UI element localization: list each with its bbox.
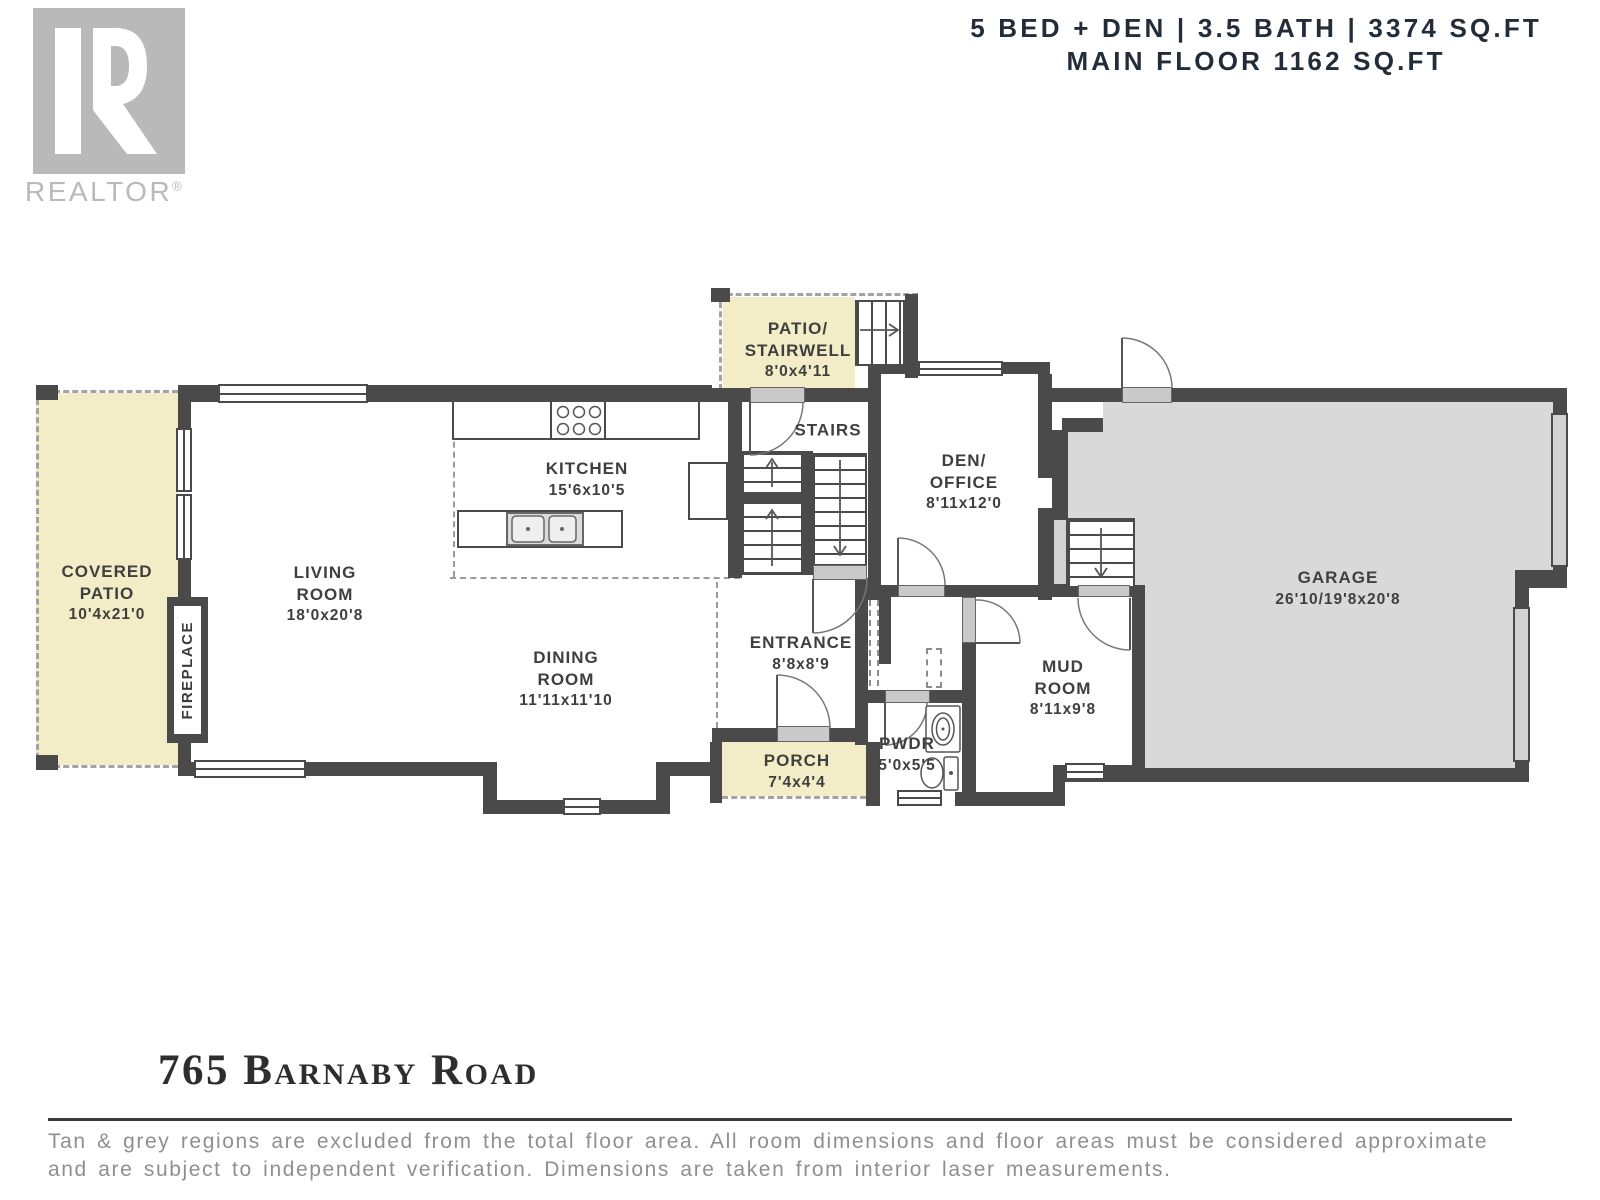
- stair-treads: [742, 451, 803, 494]
- door-bar: [813, 565, 867, 580]
- wall: [178, 558, 191, 602]
- door-bar: [885, 690, 930, 703]
- wall: [36, 385, 58, 400]
- room-label-stairs: STAIRS: [794, 419, 861, 441]
- patio-dashed-edge: [36, 390, 39, 768]
- kitchen-boundary-dashed: [450, 577, 740, 579]
- door-bar: [750, 387, 805, 403]
- window: [1052, 518, 1068, 586]
- island-sink-unit: [506, 512, 584, 546]
- wall: [728, 402, 742, 578]
- stair-treads: [742, 500, 803, 575]
- property-address: 765 Barnaby Road: [158, 1046, 539, 1095]
- fireplace-label: FIREPLACE: [179, 621, 196, 720]
- room-label-mud-room: MUD ROOM 8'11x9'8: [1030, 656, 1096, 720]
- window: [194, 760, 306, 778]
- room-label-entrance: ENTRANCE 8'8x8'9: [750, 632, 852, 675]
- wall: [1052, 430, 1068, 520]
- stair-treads: [855, 300, 905, 366]
- window: [176, 494, 192, 560]
- stove: [550, 400, 606, 440]
- wall: [868, 690, 885, 703]
- room-label-living-room: LIVING ROOM 18'0x20'8: [287, 562, 364, 626]
- stair-treads: [813, 453, 867, 566]
- entrance-boundary-dashed: [716, 582, 718, 728]
- wall: [656, 762, 712, 776]
- wall: [930, 690, 962, 703]
- wall: [1515, 570, 1567, 588]
- linen-closet: [926, 648, 942, 688]
- wall: [1172, 388, 1567, 402]
- wall: [712, 728, 777, 742]
- wall: [1132, 587, 1145, 782]
- fireplace: FIREPLACE: [167, 597, 208, 743]
- wall: [1038, 374, 1052, 478]
- wall: [955, 792, 1065, 806]
- wall: [805, 388, 868, 402]
- stairwell-dashed-edge: [719, 293, 722, 390]
- room-label-dining-room: DINING ROOM 11'11x11'10: [519, 647, 612, 711]
- room-label-den-office: DEN/ OFFICE 8'11x12'0: [926, 450, 1002, 514]
- room-label-pwdr: PWDR 5'0x5'5: [878, 733, 935, 776]
- wall: [711, 288, 730, 302]
- wall: [830, 728, 868, 742]
- garage-door: [1513, 607, 1530, 762]
- window: [1065, 763, 1105, 780]
- window: [176, 428, 192, 492]
- garage-door: [1551, 413, 1568, 567]
- wall: [178, 385, 191, 430]
- divider-line: [48, 1118, 1512, 1121]
- wall: [1062, 418, 1103, 432]
- wall: [36, 755, 58, 770]
- wall: [1133, 768, 1529, 782]
- window: [563, 798, 601, 815]
- wall: [962, 643, 976, 792]
- wall: [868, 374, 881, 600]
- stairwell-dashed-edge: [718, 293, 918, 296]
- stair-treads: [1068, 518, 1135, 588]
- wall: [712, 388, 750, 402]
- door-bar: [1122, 387, 1172, 403]
- room-label-kitchen: KITCHEN 15'6x10'5: [546, 458, 629, 501]
- window: [218, 384, 368, 403]
- room-label-patio-stairwell: PATIO/ STAIRWELL 8'0x4'11: [745, 318, 852, 382]
- door-bar: [898, 585, 945, 597]
- wall: [855, 578, 868, 745]
- disclaimer-line: Tan & grey regions are excluded from the…: [48, 1130, 1488, 1154]
- floor-plan: FIREPLACE: [0, 0, 1600, 1200]
- wall: [945, 585, 1052, 597]
- room-label-garage: GARAGE 26'10/19'8x20'8: [1275, 567, 1400, 610]
- fridge: [688, 462, 728, 520]
- porch-dashed-edge: [722, 796, 866, 799]
- door-bar: [1078, 585, 1130, 597]
- wall: [879, 597, 891, 664]
- wall: [803, 451, 813, 575]
- window: [897, 790, 942, 806]
- door-bar: [962, 597, 976, 643]
- door-bar: [777, 726, 830, 742]
- wall: [868, 585, 898, 597]
- window: [918, 361, 1003, 376]
- disclaimer-line: and are subject to independent verificat…: [48, 1158, 1172, 1182]
- entrance-closet: [869, 600, 879, 686]
- room-label-porch: PORCH 7'4x4'4: [764, 750, 830, 793]
- room-label-covered-patio: COVERED PATIO 10'4x21'0: [61, 561, 152, 625]
